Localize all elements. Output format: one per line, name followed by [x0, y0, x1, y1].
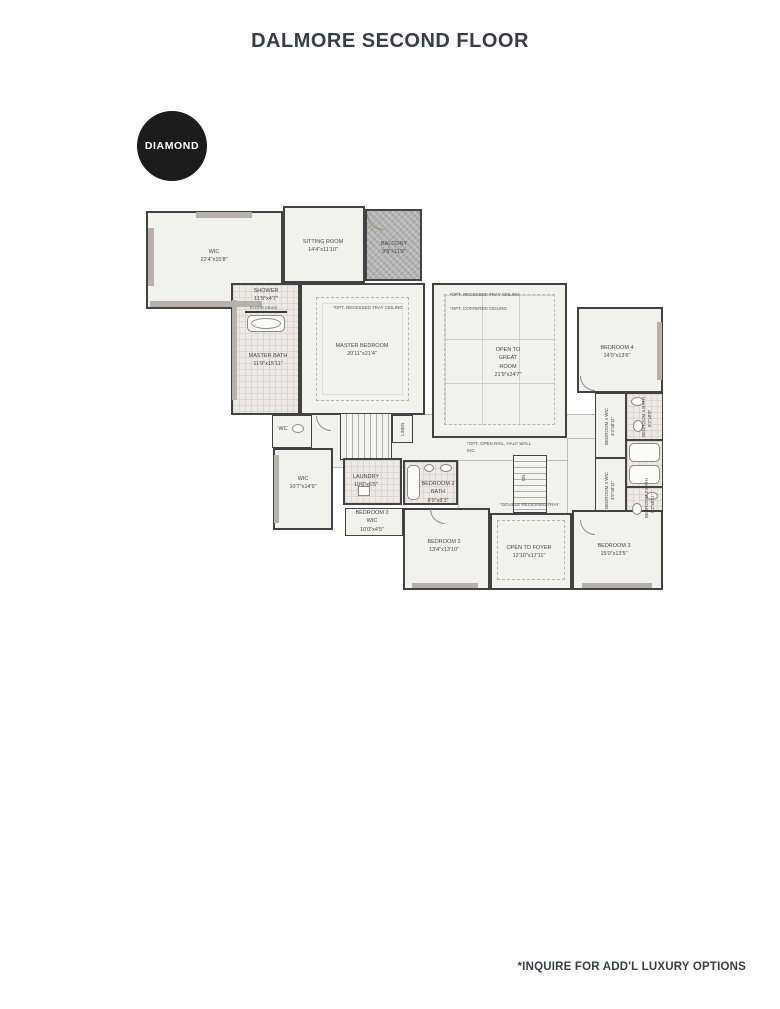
label-dn: DN — [521, 470, 527, 486]
wall-accent — [148, 228, 154, 286]
bedroom2-tub — [407, 465, 420, 500]
bedroom2-toilet — [424, 464, 434, 472]
master-tub-basin — [251, 318, 281, 329]
note-master-tray: *OPT. RECESSED TRAY CEILING — [333, 305, 403, 312]
label-laundry: LAUNDRY10'6"x6'5" — [353, 473, 379, 490]
label-sitting: SITTING ROOM14'4"x11'10" — [303, 238, 343, 255]
label-bedroom4: BEDROOM 414'0"x13'6" — [600, 344, 633, 361]
label-bedroom3-wic: BEDROOM 3 WIC4'5"x8'11" — [604, 464, 616, 516]
note-great-coffered: *OPT. COFFERED CEILING — [450, 306, 507, 313]
label-shower: SHOWER11'9"x4'7" — [254, 287, 279, 304]
label-master-bath: MASTER BATH11'9"x15'11" — [249, 352, 288, 369]
label-bedroom4-wic: BEDROOM 4 WIC4'4"x8'11" — [604, 400, 616, 452]
wall-accent — [196, 212, 252, 218]
note-open-rail: *OPT. OPEN RAIL, HALF WALL INC. — [467, 441, 539, 455]
page-title: DALMORE SECOND FLOOR — [0, 30, 780, 53]
bedroom4-tub — [629, 443, 660, 462]
label-linen: LINEN — [400, 418, 406, 440]
label-bedroom2: BEDROOM 213'4"x13'10" — [427, 538, 460, 555]
bedroom2-sink — [440, 464, 452, 472]
label-wc: WC — [278, 425, 287, 433]
floorplan-page: DALMORE SECOND FLOOR DIAMOND — [0, 0, 780, 1009]
note-double-tray: *DOUBLE RECESSED TRAY — [500, 502, 559, 509]
diamond-badge: DIAMOND — [137, 111, 207, 181]
label-foyer: OPEN TO FOYER12'10"x17'11" — [506, 544, 551, 561]
wc-toilet — [292, 424, 304, 433]
label-wic2: WIC10'7"x14'9" — [289, 475, 316, 492]
label-balcony: BALCONY9'8"x11'9" — [381, 240, 407, 257]
wall-accent — [412, 583, 478, 588]
floor-drain-line — [245, 311, 287, 313]
label-master-wic: WIC22'4"x15'8" — [200, 248, 227, 265]
wall-accent — [657, 322, 662, 380]
label-floor-drain: FLOOR DRAIN — [250, 305, 277, 311]
label-bedroom3: BEDROOM 315'0"x13'5" — [597, 542, 630, 559]
bedroom3-toilet — [632, 503, 642, 515]
note-great-tray: *OPT. RECESSED TRAY CEILING — [450, 292, 520, 299]
hallway-area — [567, 438, 598, 520]
diamond-badge-label: DIAMOND — [145, 140, 199, 152]
label-bedroom2-wic: BEDROOM 2 WIC 10'0"x4'5" — [355, 509, 388, 534]
label-bedroom3-bath: BEDROOM 3 BATH5'2"x8'11" — [644, 489, 656, 518]
wall-accent — [582, 583, 652, 588]
label-bedroom2-bath: BEDROOM 2 BATH 8'9"x8'3" — [421, 480, 454, 505]
footer-note: *INQUIRE FOR ADD'L LUXURY OPTIONS — [518, 961, 747, 973]
label-master-bedroom: MASTER BEDROOM20'11"x21'4" — [336, 342, 389, 359]
wall-accent — [274, 455, 279, 523]
wall-accent — [232, 300, 237, 400]
label-bedroom4-bath: BEDROOM 4 BATH5'2"x8'8" — [641, 399, 653, 437]
label-great-room: OPEN TO GREAT ROOM 21'9"x24'7" — [494, 346, 521, 379]
wall-accent — [150, 301, 262, 307]
stairs-up — [340, 413, 392, 460]
